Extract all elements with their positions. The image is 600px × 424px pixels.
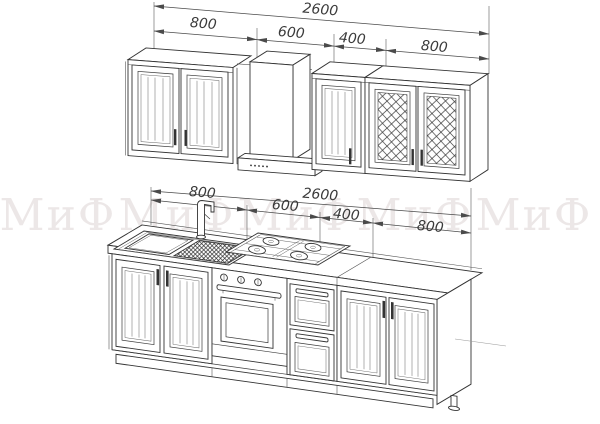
wall-cabinet-800-left <box>126 46 252 164</box>
lower-dim-label-600: 600 <box>271 197 299 215</box>
door-handle <box>383 301 386 318</box>
lattice-glass <box>427 96 456 165</box>
door-handle <box>421 150 423 166</box>
lower-total-dim-label: 2600 <box>302 186 339 205</box>
hood-duct-side <box>293 53 310 161</box>
cabinet-door <box>132 65 179 154</box>
upper-seg-dim-line <box>154 31 257 40</box>
cabinet-door <box>389 298 434 391</box>
wall-cabinet-row <box>126 40 489 188</box>
cabinet-door <box>116 259 160 352</box>
lower-dim-label-800b: 800 <box>416 218 444 236</box>
watermark-row: МиФ МиФ МиФ МиФ МиФ <box>0 190 592 241</box>
cabinet-side-face <box>470 72 488 182</box>
upper-total-dim-label: 2600 <box>302 1 339 20</box>
oven-window <box>221 297 273 348</box>
door-handle <box>157 269 160 285</box>
watermark-text: МиФ <box>0 190 116 241</box>
kitchen-drawing-page: МиФ МиФ МиФ МиФ МиФ 2600 800 600 400 800… <box>0 0 600 424</box>
lower-dim-label-800: 800 <box>188 184 216 202</box>
door-handle <box>412 149 414 165</box>
upper-dim-label-800: 800 <box>189 15 217 33</box>
lattice-glass <box>378 92 407 161</box>
drawer-unit <box>287 278 337 381</box>
upper-dim-label-600: 600 <box>277 24 305 42</box>
upper-dim-label-800b: 800 <box>420 38 448 56</box>
upper-dim-label-400: 400 <box>338 30 366 48</box>
hood-bay <box>237 49 322 176</box>
door-handle <box>391 302 394 319</box>
watermark-text: МиФ <box>476 190 593 241</box>
cabinet-door <box>341 291 386 384</box>
cabinet-leg <box>451 395 457 407</box>
door-handle <box>185 130 187 146</box>
faucet-base <box>197 235 206 239</box>
watermark-text: МиФ <box>357 190 474 241</box>
door-handle <box>166 270 169 286</box>
cabinet-door <box>316 79 361 167</box>
oven <box>212 268 287 367</box>
cabinet-leg-foot <box>449 406 460 412</box>
cabinet-door <box>164 266 208 359</box>
sink-base-cabinet <box>109 253 212 363</box>
wall-cabinet-800-lattice <box>365 64 488 182</box>
door-handle <box>349 148 351 164</box>
hood-duct <box>250 62 293 160</box>
cabinet-door <box>181 69 228 158</box>
lower-dim-label-400: 400 <box>332 206 360 224</box>
kitchen-line-drawing: МиФ МиФ МиФ МиФ МиФ 2600 800 600 400 800… <box>0 0 600 424</box>
door-handle <box>174 129 176 145</box>
